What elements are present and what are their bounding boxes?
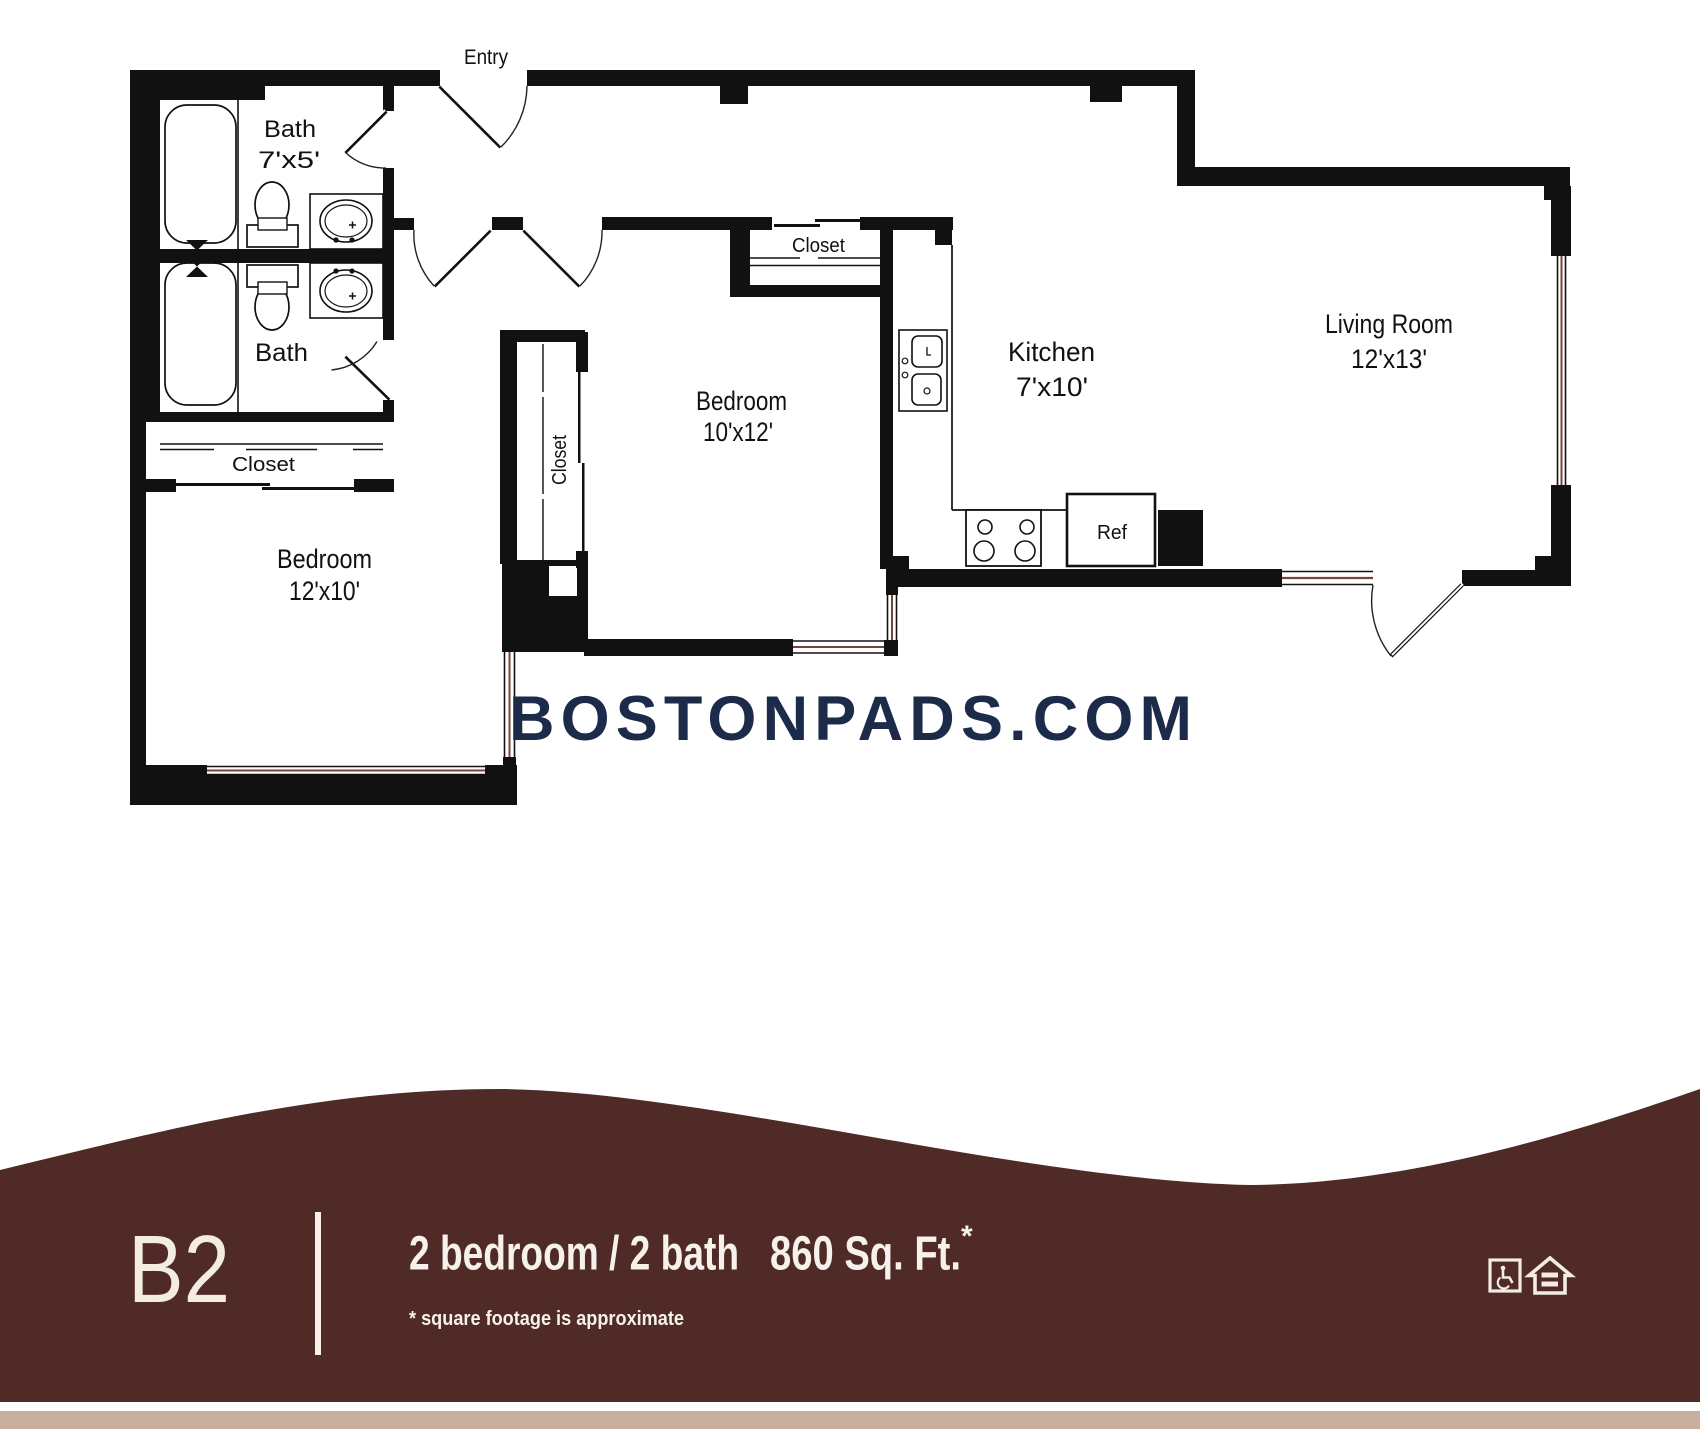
svg-text:*: * <box>961 1220 973 1253</box>
svg-text:Living Room: Living Room <box>1325 309 1453 339</box>
svg-text:Ref: Ref <box>1097 522 1127 544</box>
svg-text:Bedroom: Bedroom <box>696 386 787 416</box>
svg-text:BOSTONPADS.COM: BOSTONPADS.COM <box>509 684 1192 754</box>
svg-text:B2: B2 <box>128 1216 230 1323</box>
svg-text:Closet: Closet <box>549 435 571 485</box>
svg-text:Closet: Closet <box>792 235 845 257</box>
svg-text:Entry: Entry <box>464 46 508 69</box>
svg-text:10'x12': 10'x12' <box>703 417 773 447</box>
svg-text:2 bedroom / 2 bath: 2 bedroom / 2 bath <box>409 1228 739 1281</box>
svg-text:Bath: Bath <box>264 116 316 143</box>
svg-text:860 Sq. Ft.: 860 Sq. Ft. <box>770 1228 961 1281</box>
svg-text:12'x10': 12'x10' <box>289 576 360 606</box>
svg-text:12'x13': 12'x13' <box>1351 344 1427 374</box>
svg-text:Bedroom: Bedroom <box>277 544 372 574</box>
svg-text:Bath: Bath <box>255 339 308 367</box>
svg-text:Closet: Closet <box>232 454 295 476</box>
svg-text:* square footage is approximat: * square footage is approximate <box>409 1308 684 1330</box>
svg-text:7'x10': 7'x10' <box>1016 372 1088 402</box>
svg-text:7'x5': 7'x5' <box>258 147 320 174</box>
svg-text:Kitchen: Kitchen <box>1008 337 1095 367</box>
